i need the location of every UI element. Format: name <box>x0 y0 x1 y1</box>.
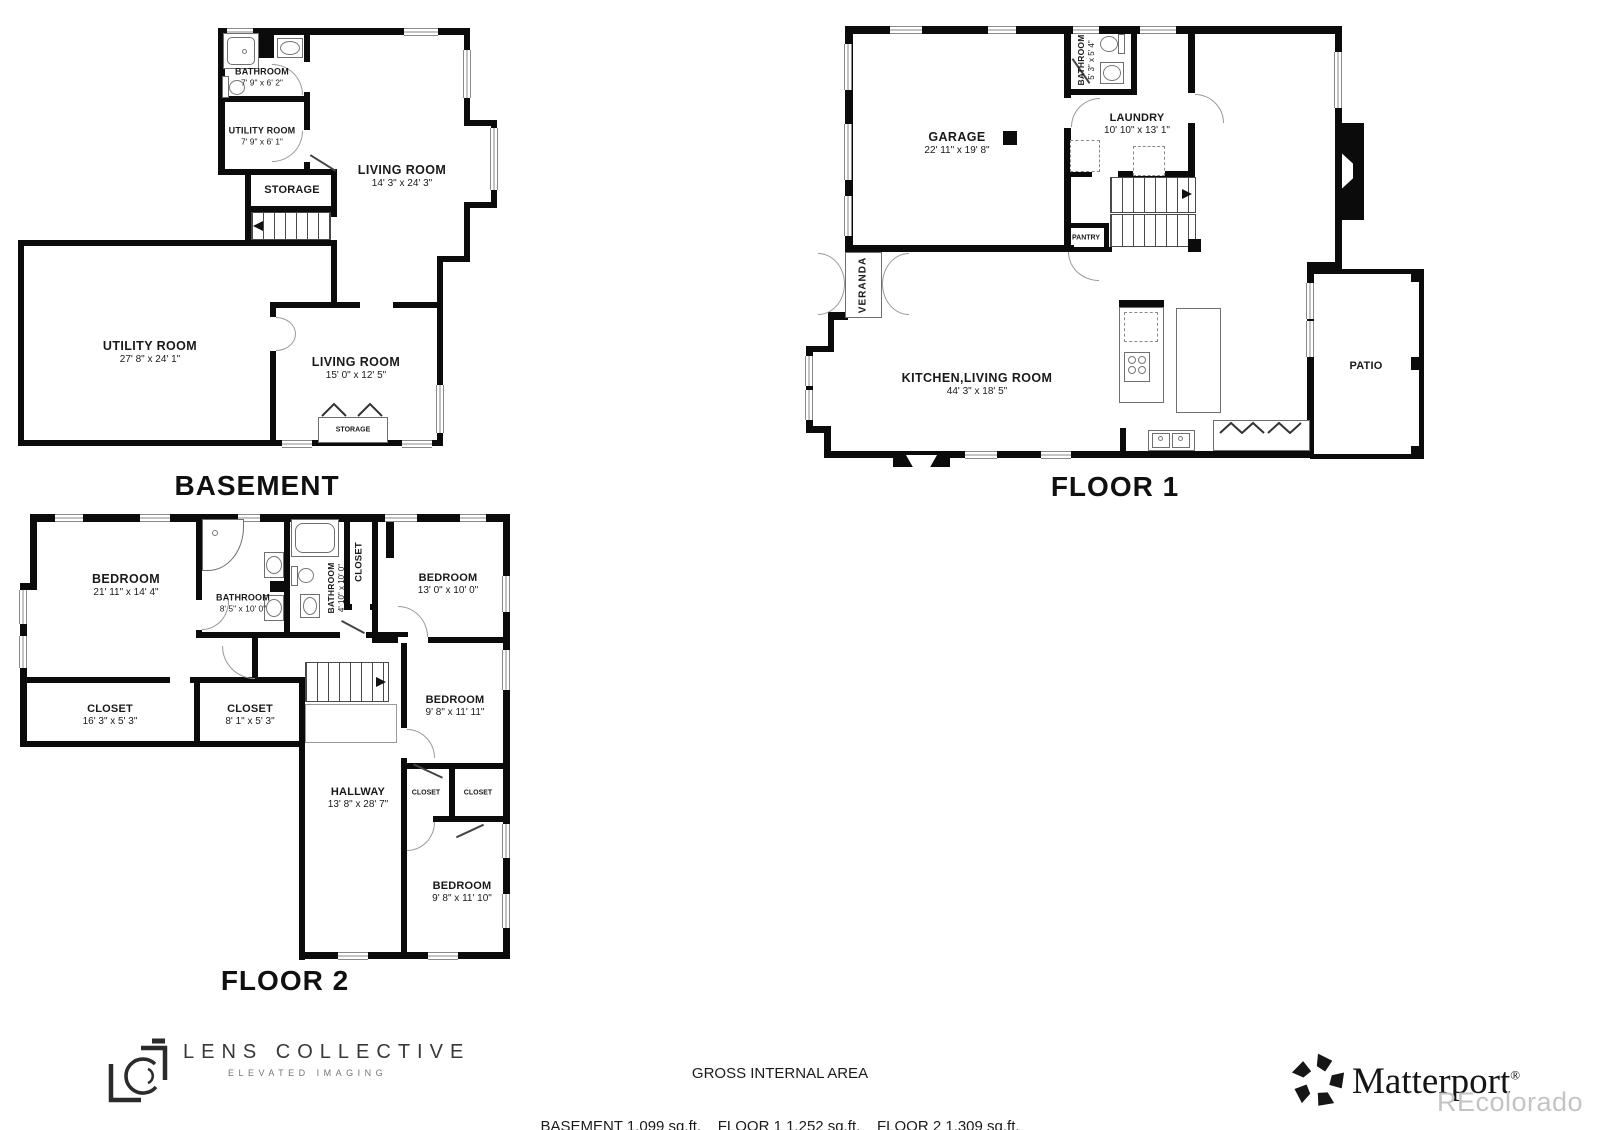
wall <box>1131 26 1137 95</box>
wall <box>449 763 455 822</box>
wall <box>464 202 470 262</box>
patio-post <box>1411 357 1424 370</box>
door-arc <box>398 606 428 637</box>
toilet <box>1100 36 1118 52</box>
wall <box>824 426 831 458</box>
window <box>385 514 417 522</box>
window <box>19 590 27 624</box>
wall <box>284 514 290 638</box>
wall <box>270 302 443 308</box>
recolorado-watermark: REcolorado <box>1437 1087 1583 1118</box>
room-dims: 44' 3" x 18' 5" <box>902 386 1053 397</box>
room-dims: 21' 11" x 14' 4" <box>92 587 160 598</box>
room-dims: 14' 3" x 24' 3" <box>358 178 446 189</box>
room-name: CLOSET <box>464 790 492 797</box>
room-label: PATIO <box>1350 360 1383 372</box>
shower-pan <box>227 37 255 65</box>
structural-post <box>1003 131 1017 145</box>
clothes-rod-symbol <box>1218 421 1306 434</box>
window <box>988 26 1016 34</box>
room-dims: 7' 9" x 6' 2" <box>235 78 289 88</box>
window <box>338 952 368 960</box>
shower-drain <box>242 49 247 54</box>
burner <box>1128 356 1136 364</box>
kitchen-island <box>1176 308 1221 413</box>
window <box>55 514 83 522</box>
door-opening <box>352 604 370 610</box>
room-label: BEDROOM 9' 8" x 11' 10" <box>432 880 492 904</box>
window <box>844 44 852 90</box>
wall <box>20 741 305 747</box>
wall <box>245 169 337 175</box>
door-arc <box>818 253 845 284</box>
door-arc <box>1071 98 1100 127</box>
room-name: LAUNDRY <box>1104 112 1170 124</box>
window <box>1041 451 1071 459</box>
wall <box>1064 223 1108 228</box>
window <box>1140 26 1176 34</box>
window <box>428 952 458 960</box>
door-arc <box>276 334 296 351</box>
room-dims: 8' 1" x 5' 3" <box>225 716 274 727</box>
door-arc <box>818 284 845 315</box>
window <box>1073 26 1099 34</box>
corner-shower <box>202 519 244 571</box>
bathtub-inner <box>295 523 335 553</box>
room-name: CLOSET <box>354 542 365 582</box>
door-arc <box>882 253 909 284</box>
burner <box>1128 366 1136 374</box>
door-arc <box>407 729 435 758</box>
room-dims: 22' 11" x 19' 8" <box>924 145 989 156</box>
room-label: BATHROOM 7' 9" x 6' 2" <box>235 67 289 88</box>
door-opening <box>304 130 310 162</box>
room-dims: 15' 0" x 12' 5" <box>312 370 400 381</box>
cabinet <box>270 581 284 592</box>
window <box>404 28 438 36</box>
window <box>890 26 922 34</box>
window <box>502 650 510 690</box>
room-label: CLOSET <box>354 542 365 582</box>
stairs-direction-arrow <box>376 677 386 687</box>
window <box>19 636 27 668</box>
room-name: CLOSET <box>83 703 138 715</box>
room-name: KITCHEN,LIVING ROOM <box>902 371 1053 385</box>
matterport-icon <box>1288 1050 1348 1112</box>
room-label: UTILITY ROOM 7' 9" x 6' 1" <box>229 126 296 147</box>
door-opening <box>1188 93 1195 123</box>
toilet-tank <box>291 566 298 586</box>
door-opening <box>1064 98 1071 128</box>
room-name: BATHROOM <box>1076 34 1086 85</box>
window <box>490 128 498 190</box>
wall <box>1119 300 1164 307</box>
sink <box>1103 65 1121 81</box>
patio-post <box>1411 269 1424 282</box>
window <box>844 124 852 180</box>
door-swing-line <box>456 824 484 838</box>
window <box>140 514 170 522</box>
window <box>502 824 510 858</box>
door-arc <box>882 284 909 315</box>
room-label: STORAGE <box>336 427 371 434</box>
patio-post <box>1411 446 1424 459</box>
sink <box>280 41 300 55</box>
room-dims: 13' 0" x 10' 0" <box>418 585 478 596</box>
room-name: LIVING ROOM <box>358 163 446 177</box>
wall <box>218 96 310 102</box>
stairs <box>251 212 331 240</box>
door-arc <box>276 317 296 334</box>
room-dims: 10' 10" x 13' 1" <box>1104 125 1170 136</box>
gross-title: GROSS INTERNAL AREA <box>503 1065 1057 1083</box>
door-arc <box>1195 94 1224 123</box>
room-label: PANTRY <box>1072 235 1100 242</box>
wall <box>20 677 170 683</box>
window <box>502 576 510 612</box>
room-label: CLOSET <box>412 790 440 797</box>
sink-drain <box>1158 436 1163 441</box>
window <box>965 451 997 459</box>
room-name: BATHROOM <box>216 593 270 603</box>
patio-wall <box>1310 269 1424 274</box>
lens-collective-tagline: ELEVATED IMAGING <box>228 1068 387 1078</box>
window <box>463 50 471 98</box>
floorplan-page: BATHROOM 7' 9" x 6' 2" UTILITY ROOM 7' 9… <box>0 0 1600 1130</box>
shower-head <box>212 530 218 536</box>
room-dims: 8' 5" x 10' 0" <box>216 604 270 614</box>
window <box>460 514 486 522</box>
room-label: LIVING ROOM 15' 0" x 12' 5" <box>312 355 400 381</box>
room-name: BEDROOM <box>92 572 160 586</box>
wall <box>401 637 407 959</box>
room-label: HALLWAY 13' 8" x 28' 7" <box>328 786 388 810</box>
stair-landing <box>305 704 397 743</box>
window <box>844 196 852 236</box>
room-label: LIVING ROOM 14' 3" x 24' 3" <box>358 163 446 189</box>
room-dims: 27' 8" x 24' 1" <box>103 354 197 365</box>
sink-drain <box>1178 436 1183 441</box>
room-label: BEDROOM 9' 8" x 11' 11" <box>426 694 485 718</box>
room-name: STORAGE <box>264 184 320 196</box>
window <box>805 356 813 386</box>
window <box>1306 321 1314 357</box>
window <box>502 894 510 928</box>
door-arc <box>407 822 435 851</box>
toilet-tank <box>222 76 229 98</box>
room-label: KITCHEN,LIVING ROOM 44' 3" x 18' 5" <box>902 371 1053 397</box>
wall <box>30 514 37 590</box>
patio-wall <box>1310 454 1424 459</box>
room-dims: 9' 8" x 11' 10" <box>432 893 492 904</box>
washer <box>1070 140 1100 172</box>
room-label: VERANDA <box>858 257 869 313</box>
window <box>1306 283 1314 319</box>
room-name: PANTRY <box>1072 235 1100 242</box>
registered-mark: ® <box>1510 1068 1520 1083</box>
room-dims: 5' 3" x 5' 4" <box>1087 34 1096 85</box>
window <box>282 440 312 448</box>
room-name: UTILITY ROOM <box>229 126 296 136</box>
stairs-direction-arrow <box>1182 189 1192 199</box>
wall <box>30 514 510 522</box>
window <box>402 440 432 448</box>
room-label: BATHROOM 5' 3" x 5' 4" <box>1076 34 1096 85</box>
wall <box>1064 26 1071 252</box>
sink <box>303 597 317 615</box>
room-label: BATHROOM 4' 10" x 10' 0" <box>326 562 346 613</box>
sink <box>266 556 282 574</box>
plan-title-basement: BASEMENT <box>174 470 339 502</box>
toilet-tank <box>1118 34 1125 54</box>
room-dims: 7' 9" x 6' 1" <box>229 137 296 147</box>
wall <box>372 637 510 643</box>
room-name: STORAGE <box>336 427 371 434</box>
wall <box>194 677 200 747</box>
room-name: BEDROOM <box>418 572 478 584</box>
room-dims: 4' 10" x 10' 0" <box>337 562 346 613</box>
room-name: BATHROOM <box>235 67 289 77</box>
wall <box>1120 428 1126 451</box>
room-name: HALLWAY <box>328 786 388 798</box>
plan-title-floor1: FLOOR 1 <box>1051 471 1179 503</box>
toilet <box>298 568 314 583</box>
plan-title-floor2: FLOOR 2 <box>221 965 349 997</box>
window <box>436 385 444 433</box>
room-name: UTILITY ROOM <box>103 339 197 353</box>
room-name: BEDROOM <box>426 694 485 706</box>
room-label: CLOSET 8' 1" x 5' 3" <box>225 703 274 727</box>
wall <box>1064 89 1137 95</box>
lens-collective-icon <box>103 1030 175 1106</box>
stairs-direction-arrow <box>253 221 263 231</box>
room-label: BATHROOM 8' 5" x 10' 0" <box>216 593 270 614</box>
room-name: VERANDA <box>858 257 869 313</box>
room-name: CLOSET <box>225 703 274 715</box>
wall <box>18 240 24 446</box>
room-label: CLOSET <box>464 790 492 797</box>
room-label: GARAGE 22' 11" x 19' 8" <box>924 130 989 156</box>
room-name: BEDROOM <box>432 880 492 892</box>
room-label: BEDROOM 21' 11" x 14' 4" <box>92 572 160 598</box>
dryer <box>1133 146 1165 176</box>
structural-post <box>1188 239 1201 252</box>
door-opening <box>304 62 310 92</box>
room-name: CLOSET <box>412 790 440 797</box>
wall <box>258 28 274 58</box>
refrigerator <box>1124 312 1158 342</box>
burner <box>1138 356 1146 364</box>
stairs <box>1110 214 1196 247</box>
wall <box>845 245 1074 252</box>
wall <box>331 240 337 308</box>
room-dims: 9' 8" x 11' 11" <box>426 707 485 718</box>
window <box>1334 52 1342 108</box>
room-name: GARAGE <box>924 130 989 144</box>
wall <box>299 952 510 959</box>
window <box>805 390 813 420</box>
gross-line1: BASEMENT 1,099 sq.ft. FLOOR 1 1,252 sq.f… <box>503 1118 1057 1130</box>
room-name: PATIO <box>1350 360 1383 372</box>
burner <box>1138 366 1146 374</box>
gross-internal-area: GROSS INTERNAL AREA BASEMENT 1,099 sq.ft… <box>503 1030 1057 1130</box>
door-arc <box>222 646 255 679</box>
room-label: BEDROOM 13' 0" x 10' 0" <box>418 572 478 596</box>
room-dims: 16' 3" x 5' 3" <box>83 716 138 727</box>
door-opening <box>398 637 428 643</box>
lens-collective-name: LENS COLLECTIVE <box>183 1041 470 1064</box>
door-arc <box>1068 252 1099 281</box>
room-label: STORAGE <box>264 184 320 196</box>
room-name: BATHROOM <box>326 562 336 613</box>
clothes-rod-symbol <box>318 401 388 417</box>
room-label: CLOSET 16' 3" x 5' 3" <box>83 703 138 727</box>
room-name: LIVING ROOM <box>312 355 400 369</box>
wall <box>18 240 337 246</box>
room-label: LAUNDRY 10' 10" x 13' 1" <box>1104 112 1170 136</box>
room-label: UTILITY ROOM 27' 8" x 24' 1" <box>103 339 197 365</box>
wall-opening <box>360 302 393 308</box>
room-dims: 13' 8" x 28' 7" <box>328 799 388 810</box>
wall <box>372 514 378 643</box>
